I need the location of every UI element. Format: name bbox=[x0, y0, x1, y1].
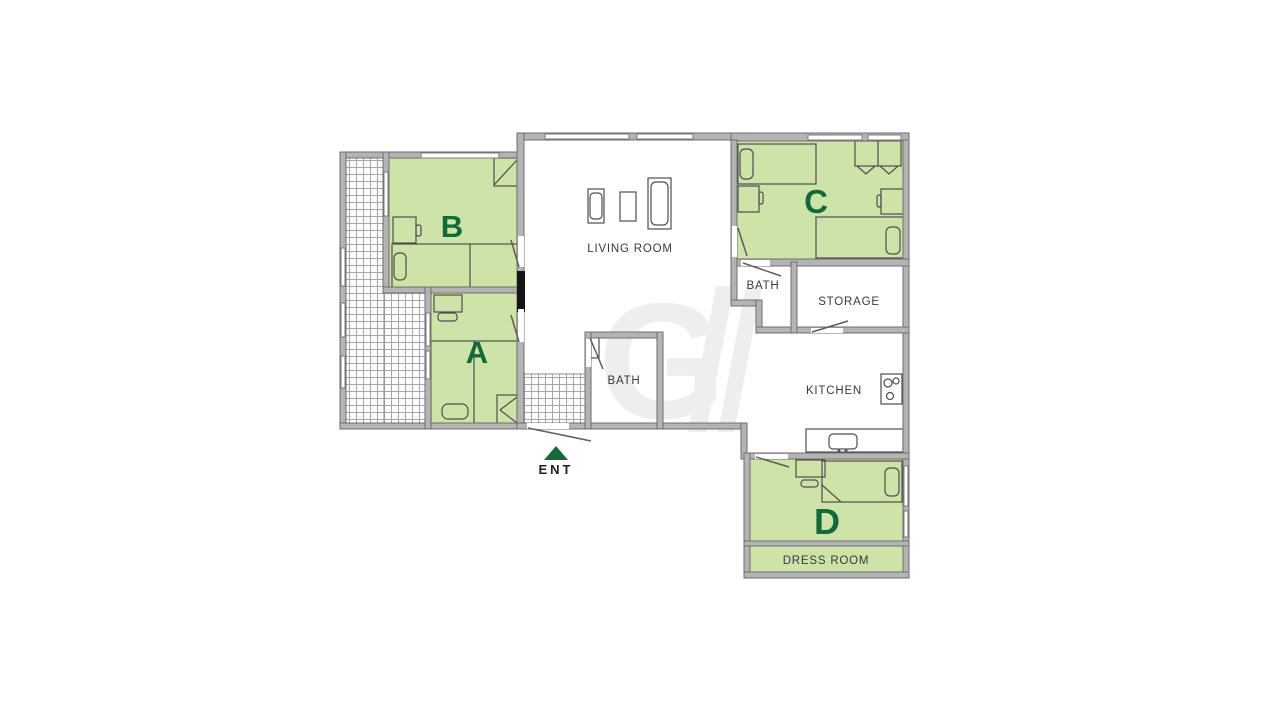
wall-segment bbox=[585, 332, 663, 338]
window bbox=[545, 134, 629, 139]
balcony-tiles bbox=[346, 158, 384, 424]
wall-segment bbox=[657, 332, 663, 429]
entrance-label: ENT bbox=[539, 462, 574, 477]
window bbox=[341, 356, 345, 388]
faucet-dot bbox=[845, 450, 848, 453]
bedroom-a-letter: A bbox=[466, 335, 488, 370]
faucet-dot bbox=[838, 450, 841, 453]
living-room-label: LIVING ROOM bbox=[587, 243, 672, 255]
dress-room-label: DRESS ROOM bbox=[783, 555, 870, 567]
bath-right-label: BATH bbox=[746, 280, 779, 292]
window bbox=[808, 135, 862, 140]
door-opening bbox=[527, 423, 569, 429]
wall-segment bbox=[744, 453, 750, 577]
bedroom-b-letter: B bbox=[441, 209, 463, 244]
window bbox=[637, 134, 693, 139]
door-opening bbox=[518, 236, 524, 267]
door-opening bbox=[732, 226, 737, 257]
door-opening bbox=[586, 339, 591, 367]
floor-plan-drawing: G LIVING ROOM BATH BATH STORAGE KITCHEN … bbox=[0, 0, 1280, 720]
window bbox=[384, 172, 388, 216]
floor-plan-page: G LIVING ROOM BATH BATH STORAGE KITCHEN … bbox=[0, 0, 1280, 720]
door-opening bbox=[741, 260, 770, 266]
window bbox=[904, 511, 908, 537]
window bbox=[426, 351, 430, 379]
kitchen-label: KITCHEN bbox=[806, 385, 862, 397]
entry-tiles bbox=[523, 374, 586, 424]
window bbox=[426, 313, 430, 346]
bath-center-label: BATH bbox=[607, 375, 640, 387]
wall-segment bbox=[744, 572, 909, 578]
storage-label: STORAGE bbox=[818, 296, 880, 308]
door-opening bbox=[518, 309, 524, 342]
wall-segment bbox=[383, 287, 522, 293]
window bbox=[868, 135, 901, 140]
window bbox=[421, 153, 499, 158]
window bbox=[904, 466, 908, 506]
bedroom-d-letter: D bbox=[814, 501, 840, 542]
sink bbox=[829, 434, 857, 449]
wall-segment bbox=[791, 262, 797, 333]
wall-segment bbox=[340, 423, 526, 429]
balcony-tiles bbox=[384, 292, 426, 424]
bedroom-c-letter: C bbox=[804, 183, 828, 220]
window bbox=[341, 303, 345, 337]
wall-segment bbox=[731, 140, 737, 306]
window bbox=[341, 248, 345, 286]
shaft-wall bbox=[517, 271, 525, 312]
